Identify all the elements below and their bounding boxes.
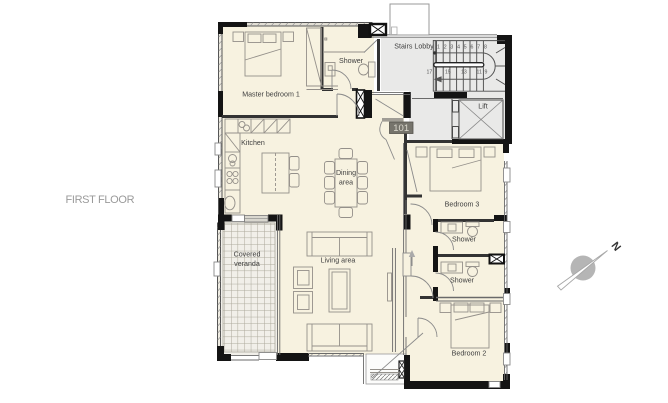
svg-text:13: 13 <box>461 70 467 76</box>
svg-text:area: area <box>339 179 353 187</box>
svg-text:Master bedroom 1: Master bedroom 1 <box>242 91 300 99</box>
svg-text:2: 2 <box>444 45 447 51</box>
svg-text:Bedroom 3: Bedroom 3 <box>445 201 480 209</box>
svg-text:veranda: veranda <box>234 260 260 268</box>
svg-text:15: 15 <box>445 70 451 76</box>
svg-text:Shower: Shower <box>339 57 364 65</box>
svg-text:Stairs Lobby: Stairs Lobby <box>394 43 434 51</box>
svg-text:101: 101 <box>393 123 409 134</box>
svg-text:9: 9 <box>485 70 488 76</box>
svg-text:4: 4 <box>457 45 460 51</box>
svg-text:7: 7 <box>477 45 480 51</box>
svg-text:FIRST FLOOR: FIRST FLOOR <box>66 194 135 206</box>
svg-text:11: 11 <box>477 70 482 76</box>
svg-text:Shower: Shower <box>452 236 477 244</box>
svg-text:17: 17 <box>427 70 433 76</box>
svg-text:Covered: Covered <box>234 251 261 259</box>
svg-text:6: 6 <box>471 45 474 51</box>
svg-text:Kitchen: Kitchen <box>241 139 265 147</box>
svg-text:3: 3 <box>450 45 453 51</box>
svg-text:8: 8 <box>484 45 487 51</box>
svg-text:Bedroom 2: Bedroom 2 <box>452 350 487 358</box>
svg-text:Dining: Dining <box>336 169 356 177</box>
svg-text:Living area: Living area <box>321 257 356 265</box>
svg-text:Shower: Shower <box>450 277 475 285</box>
svg-text:N: N <box>608 240 622 254</box>
svg-text:Lift: Lift <box>478 103 487 111</box>
svg-text:1: 1 <box>437 45 440 51</box>
svg-text:5: 5 <box>464 45 467 51</box>
